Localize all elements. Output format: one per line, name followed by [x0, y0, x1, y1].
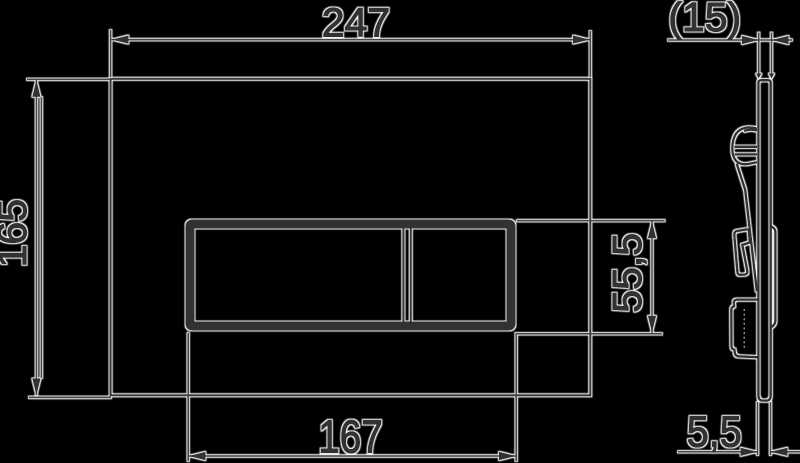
- svg-text:167: 167: [318, 411, 382, 462]
- svg-text:165: 165: [0, 199, 35, 267]
- svg-text:5,5: 5,5: [687, 407, 742, 456]
- svg-text:55,5: 55,5: [604, 233, 650, 313]
- svg-text:247: 247: [322, 0, 390, 46]
- svg-text:(15): (15): [668, 0, 741, 40]
